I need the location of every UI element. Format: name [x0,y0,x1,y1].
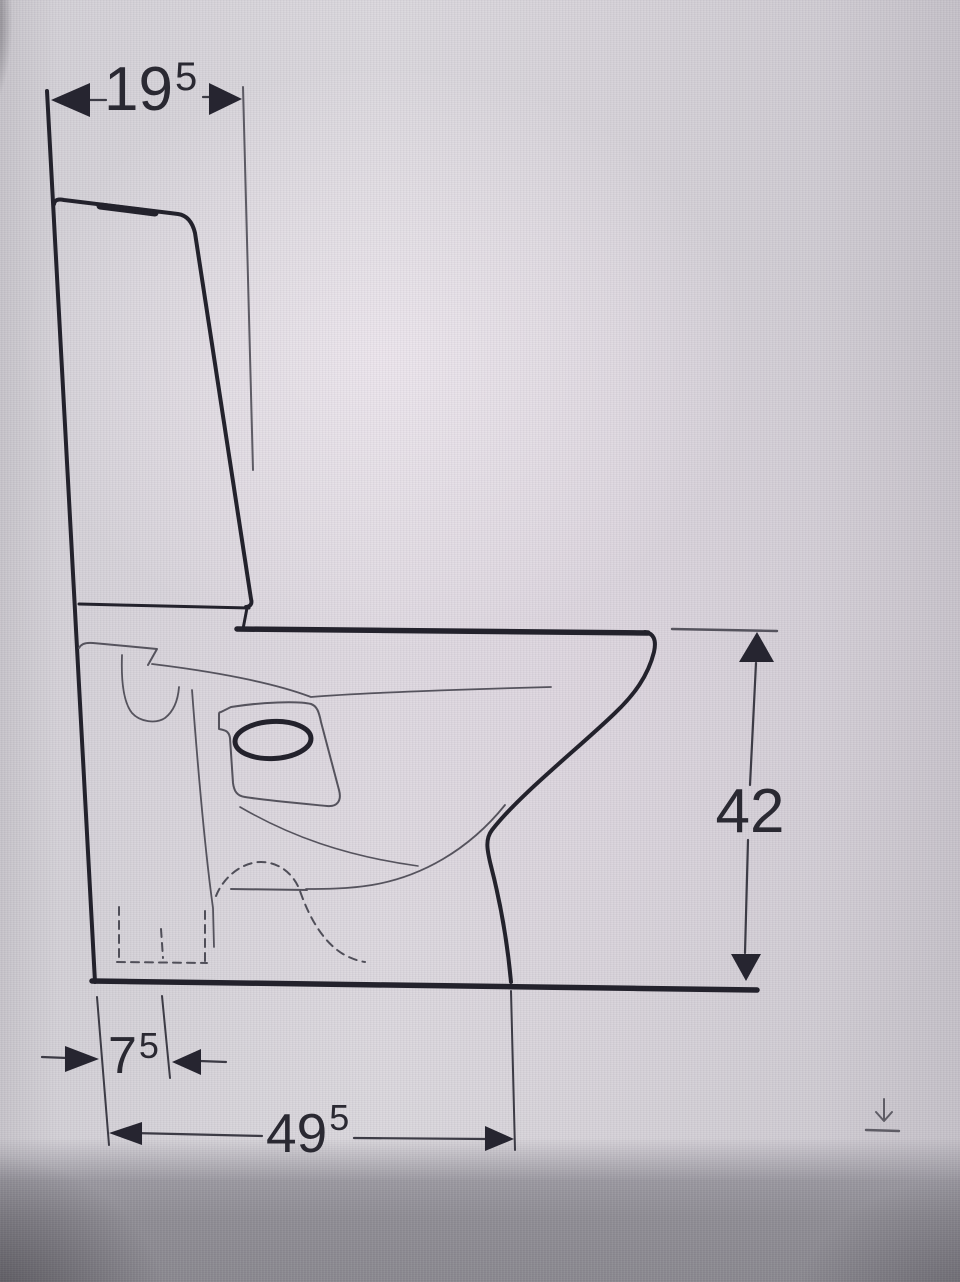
dim-line-upper [750,663,756,785]
bowl-inner-curve [306,805,505,889]
arrow-up-icon [739,632,774,662]
trapway-dashed-curve [216,862,365,962]
bowl-front-outline [487,632,655,982]
download-baseline [866,1130,899,1131]
dim-line-left-outer [42,1057,67,1058]
photographed-screen: 195 42 75 [0,0,960,1282]
trap-back-line [192,690,214,947]
ext-line-bottom-mid [162,996,170,1078]
dim-label-depth: 495 [266,1097,349,1164]
seat-top-line [237,629,648,633]
toilet-dimension-drawing: 195 42 75 [0,0,960,1282]
dim-label-height: 42 [716,777,785,846]
cistern-shelf-line [79,604,249,608]
dim-outlet-offset: 75 [42,996,226,1145]
arrow-right-icon [485,1126,514,1151]
ext-line-top-right [243,87,253,470]
interior-lines [79,643,551,947]
arrow-left-icon [172,1049,201,1075]
base-outlet-dashed-mid [161,929,163,958]
arrow-right-icon [209,83,242,115]
inlet-shelf-line [79,643,157,665]
dim-label-top-width: 195 [104,55,197,124]
cistern-lid-seam [100,206,155,213]
water-line [231,889,307,890]
wall-line [47,91,95,982]
dim-height: 42 [672,629,784,981]
arrow-left-icon [109,1122,142,1145]
product-outline [47,91,757,990]
arrow-left-icon [51,83,90,117]
rim-inner-line [152,664,551,697]
dim-line-left [133,1133,262,1136]
arrow-down-icon [731,954,761,981]
cistern-foot-line [243,608,247,629]
dim-line-right [354,1138,488,1139]
floor-line [92,981,757,990]
ext-line-rim-right [672,629,777,631]
dim-label-outlet-offset: 75 [108,1025,159,1085]
flush-housing-outline [219,702,340,806]
dimension-annotations: 195 42 75 [42,55,784,1164]
ext-line-bottom-right [511,991,515,1150]
base-outlet-dashed-bottom [117,962,207,963]
housing-lower-curve [240,807,418,866]
dim-line-right-outer [200,1061,226,1062]
arrow-right-icon [65,1046,99,1072]
hidden-dashed-lines [117,862,365,963]
outlet-ellipse [234,720,312,761]
download-icon[interactable] [866,1099,899,1131]
cistern-outline [54,200,251,608]
dim-line-lower [745,840,748,953]
inlet-hook-line [122,655,179,721]
